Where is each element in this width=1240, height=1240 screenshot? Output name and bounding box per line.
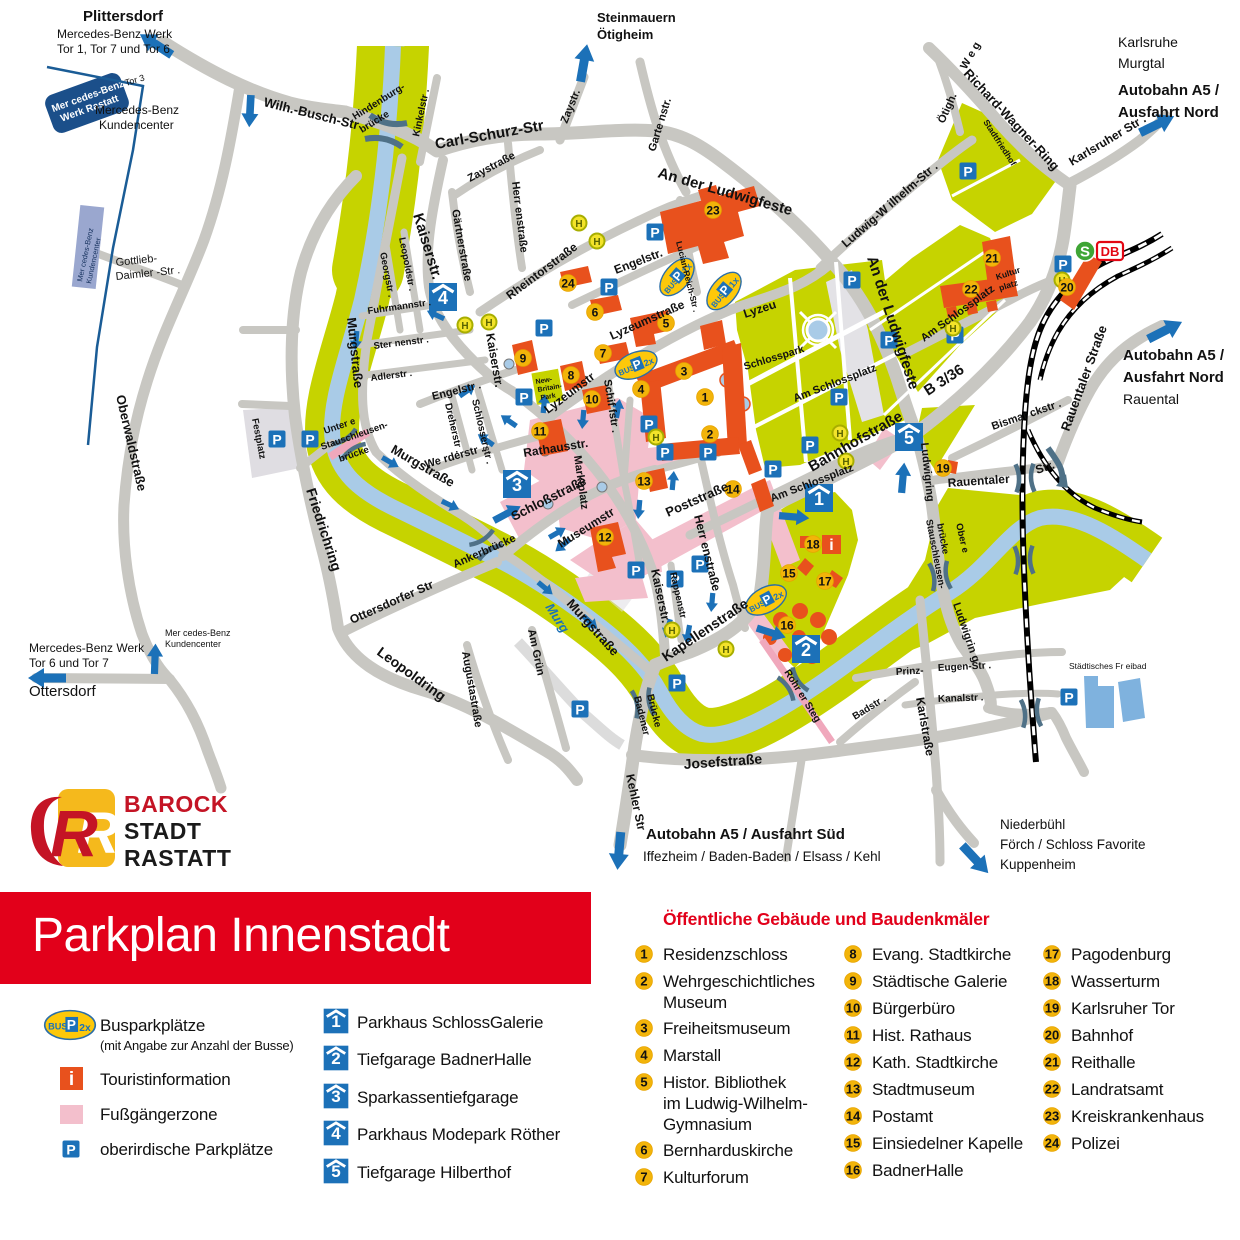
svg-text:Touristinformation: Touristinformation bbox=[100, 1070, 231, 1089]
svg-text:3: 3 bbox=[681, 365, 688, 379]
svg-text:Kundencenter: Kundencenter bbox=[99, 118, 174, 132]
svg-text:3: 3 bbox=[331, 1087, 340, 1106]
svg-text:Parkhaus Modepark Röther: Parkhaus Modepark Röther bbox=[357, 1125, 561, 1144]
svg-text:STADT: STADT bbox=[124, 818, 201, 844]
svg-text:Ausfahrt Nord: Ausfahrt Nord bbox=[1123, 369, 1224, 386]
svg-text:Kath. Stadtkirche: Kath. Stadtkirche bbox=[872, 1053, 998, 1072]
svg-text:Einsiedelner Kapelle: Einsiedelner Kapelle bbox=[872, 1134, 1023, 1153]
svg-text:1: 1 bbox=[814, 489, 824, 509]
svg-text:Wehrgeschichtliches: Wehrgeschichtliches bbox=[663, 972, 815, 991]
svg-text:Parkhaus SchlossGalerie: Parkhaus SchlossGalerie bbox=[357, 1013, 543, 1032]
svg-text:Tor 6 und Tor 7: Tor 6 und Tor 7 bbox=[29, 656, 109, 670]
svg-text:2: 2 bbox=[640, 974, 647, 989]
svg-text:15: 15 bbox=[782, 567, 796, 581]
svg-text:3: 3 bbox=[640, 1021, 647, 1036]
svg-text:6: 6 bbox=[592, 306, 599, 320]
svg-text:Steinmauern: Steinmauern bbox=[597, 10, 676, 25]
svg-text:Kulturforum: Kulturforum bbox=[663, 1168, 749, 1187]
svg-text:5: 5 bbox=[640, 1075, 647, 1090]
svg-text:Mercedes-Benz Werk: Mercedes-Benz Werk bbox=[57, 27, 173, 41]
svg-text:Polizei: Polizei bbox=[1071, 1134, 1120, 1153]
svg-text:Sparkassentiefgarage: Sparkassentiefgarage bbox=[357, 1088, 518, 1107]
svg-text:Autobahn A5 /: Autobahn A5 / bbox=[1123, 347, 1225, 364]
svg-text:Städtische Galerie: Städtische Galerie bbox=[872, 972, 1007, 991]
svg-text:Kundencenter: Kundencenter bbox=[165, 639, 221, 649]
svg-text:Prinz-: Prinz- bbox=[896, 666, 924, 678]
svg-text:19: 19 bbox=[936, 462, 950, 476]
svg-text:Mer cedes-Benz: Mer cedes-Benz bbox=[165, 628, 231, 638]
svg-text:18: 18 bbox=[806, 538, 820, 552]
svg-text:18: 18 bbox=[1045, 974, 1059, 989]
svg-text:Mercedes-Benz: Mercedes-Benz bbox=[95, 103, 179, 117]
svg-text:20: 20 bbox=[1045, 1028, 1059, 1043]
svg-text:Ötigheim: Ötigheim bbox=[597, 27, 653, 42]
svg-text:BAROCK: BAROCK bbox=[124, 791, 228, 817]
svg-text:im Ludwig-Wilhelm-: im Ludwig-Wilhelm- bbox=[663, 1094, 808, 1113]
svg-text:Autobahn A5 / Ausfahrt Süd: Autobahn A5 / Ausfahrt Süd bbox=[646, 826, 845, 843]
svg-text:Tor 1, Tor 7 und Tor 6: Tor 1, Tor 7 und Tor 6 bbox=[57, 42, 170, 56]
svg-text:13: 13 bbox=[846, 1082, 860, 1097]
svg-text:Parkplan Innenstadt: Parkplan Innenstadt bbox=[32, 909, 450, 962]
svg-text:1: 1 bbox=[331, 1012, 340, 1031]
svg-text:Ottersdorf: Ottersdorf bbox=[29, 683, 97, 700]
svg-text:16: 16 bbox=[846, 1163, 860, 1178]
svg-text:Residenzschloss: Residenzschloss bbox=[663, 945, 788, 964]
svg-text:Wasserturm: Wasserturm bbox=[1071, 972, 1160, 991]
svg-text:20: 20 bbox=[1060, 281, 1074, 295]
svg-text:Hist. Rathaus: Hist. Rathaus bbox=[872, 1026, 971, 1045]
svg-text:Bürgerbüro: Bürgerbüro bbox=[872, 999, 955, 1018]
svg-text:2: 2 bbox=[801, 640, 811, 660]
svg-text:BadnerHalle: BadnerHalle bbox=[872, 1161, 963, 1180]
svg-text:4: 4 bbox=[331, 1124, 341, 1143]
svg-text:Kreiskrankenhaus: Kreiskrankenhaus bbox=[1071, 1107, 1204, 1126]
svg-text:9: 9 bbox=[849, 974, 856, 989]
svg-text:RASTATT: RASTATT bbox=[124, 845, 231, 871]
svg-text:14: 14 bbox=[846, 1109, 861, 1124]
svg-text:17: 17 bbox=[818, 575, 832, 589]
svg-text:oberirdische Parkplätze: oberirdische Parkplätze bbox=[100, 1140, 273, 1159]
svg-text:i: i bbox=[829, 537, 833, 554]
svg-text:Niederbühl: Niederbühl bbox=[1000, 817, 1065, 832]
svg-text:7: 7 bbox=[600, 347, 607, 361]
svg-text:Plittersdorf: Plittersdorf bbox=[83, 8, 164, 25]
svg-text:9: 9 bbox=[520, 352, 527, 366]
svg-text:12: 12 bbox=[846, 1055, 860, 1070]
svg-text:Karlsruher Tor: Karlsruher Tor bbox=[1071, 999, 1175, 1018]
svg-text:5: 5 bbox=[904, 428, 914, 448]
svg-text:23: 23 bbox=[706, 204, 720, 218]
svg-text:Förch / Schloss Favorite: Förch / Schloss Favorite bbox=[1000, 837, 1146, 852]
svg-text:Stadtmuseum: Stadtmuseum bbox=[872, 1080, 975, 1099]
svg-text:Fußgängerzone: Fußgängerzone bbox=[100, 1105, 217, 1124]
svg-text:Marstall: Marstall bbox=[663, 1046, 721, 1065]
svg-text:Evang. Stadtkirche: Evang. Stadtkirche bbox=[872, 945, 1011, 964]
svg-text:1: 1 bbox=[640, 947, 647, 962]
svg-text:Reithalle: Reithalle bbox=[1071, 1053, 1135, 1072]
svg-text:10: 10 bbox=[846, 1001, 860, 1016]
svg-text:Histor. Bibliothek: Histor. Bibliothek bbox=[663, 1073, 787, 1092]
svg-text:2: 2 bbox=[331, 1049, 340, 1068]
svg-text:(mit Angabe zur Anzahl der Bus: (mit Angabe zur Anzahl der Busse) bbox=[100, 1038, 294, 1053]
svg-text:3: 3 bbox=[512, 475, 522, 495]
svg-text:DB: DB bbox=[1101, 244, 1120, 259]
svg-text:12: 12 bbox=[598, 531, 612, 545]
svg-text:22: 22 bbox=[1045, 1082, 1059, 1097]
svg-text:Kanalstr .: Kanalstr . bbox=[938, 692, 984, 705]
svg-text:2: 2 bbox=[707, 428, 714, 442]
svg-text:17: 17 bbox=[1045, 947, 1059, 962]
svg-text:Bahnhof: Bahnhof bbox=[1071, 1026, 1133, 1045]
svg-text:19: 19 bbox=[1045, 1001, 1059, 1016]
svg-text:15: 15 bbox=[846, 1136, 860, 1151]
svg-text:Öffentliche Gebäude und Bauden: Öffentliche Gebäude und Baudenkmäler bbox=[663, 909, 990, 929]
svg-text:24: 24 bbox=[561, 277, 575, 291]
svg-text:11: 11 bbox=[534, 425, 547, 439]
svg-text:4: 4 bbox=[640, 1048, 648, 1063]
svg-text:Autobahn A5 /: Autobahn A5 / bbox=[1118, 82, 1220, 99]
svg-text:16: 16 bbox=[780, 619, 794, 633]
svg-text:24: 24 bbox=[1045, 1136, 1060, 1151]
svg-text:10: 10 bbox=[585, 393, 599, 407]
svg-text:11: 11 bbox=[846, 1028, 860, 1043]
svg-text:Iffezheim / Baden-Baden / Elsa: Iffezheim / Baden-Baden / Elsass / Kehl bbox=[643, 849, 881, 864]
svg-text:S: S bbox=[1080, 244, 1090, 261]
svg-text:Gymnasium: Gymnasium bbox=[663, 1115, 752, 1134]
svg-text:21: 21 bbox=[985, 252, 999, 266]
svg-text:21: 21 bbox=[1045, 1055, 1059, 1070]
svg-text:Pagodenburg: Pagodenburg bbox=[1071, 945, 1171, 964]
svg-text:6: 6 bbox=[640, 1143, 647, 1158]
svg-text:8: 8 bbox=[849, 947, 856, 962]
svg-text:7: 7 bbox=[640, 1170, 647, 1185]
svg-text:Städtisches Fr eibad: Städtisches Fr eibad bbox=[1069, 661, 1147, 671]
svg-text:Tiefgarage Hilberthof: Tiefgarage Hilberthof bbox=[357, 1163, 511, 1182]
svg-text:4: 4 bbox=[438, 288, 448, 308]
svg-text:i: i bbox=[69, 1069, 74, 1090]
svg-text:Murgtal: Murgtal bbox=[1118, 55, 1165, 71]
svg-text:5: 5 bbox=[331, 1162, 340, 1181]
svg-text:Freiheitsmuseum: Freiheitsmuseum bbox=[663, 1019, 790, 1038]
svg-text:Bernharduskirche: Bernharduskirche bbox=[663, 1141, 793, 1160]
svg-text:4: 4 bbox=[638, 383, 645, 397]
svg-text:R: R bbox=[50, 796, 98, 870]
svg-text:13: 13 bbox=[637, 475, 651, 489]
svg-text:Museum: Museum bbox=[663, 993, 727, 1012]
svg-text:Karlsruhe: Karlsruhe bbox=[1118, 34, 1178, 50]
svg-text:Tiefgarage BadnerHalle: Tiefgarage BadnerHalle bbox=[357, 1050, 532, 1069]
svg-text:1: 1 bbox=[702, 391, 709, 405]
svg-text:Landratsamt: Landratsamt bbox=[1071, 1080, 1164, 1099]
svg-text:Kuppenheim: Kuppenheim bbox=[1000, 857, 1076, 872]
svg-text:Rauental: Rauental bbox=[1123, 391, 1179, 407]
svg-text:Mercedes-Benz Werk: Mercedes-Benz Werk bbox=[29, 641, 145, 655]
svg-text:Busparkplätze: Busparkplätze bbox=[100, 1016, 205, 1035]
svg-text:Ausfahrt Nord: Ausfahrt Nord bbox=[1118, 104, 1219, 121]
svg-text:Postamt: Postamt bbox=[872, 1107, 933, 1126]
svg-text:23: 23 bbox=[1045, 1109, 1059, 1124]
